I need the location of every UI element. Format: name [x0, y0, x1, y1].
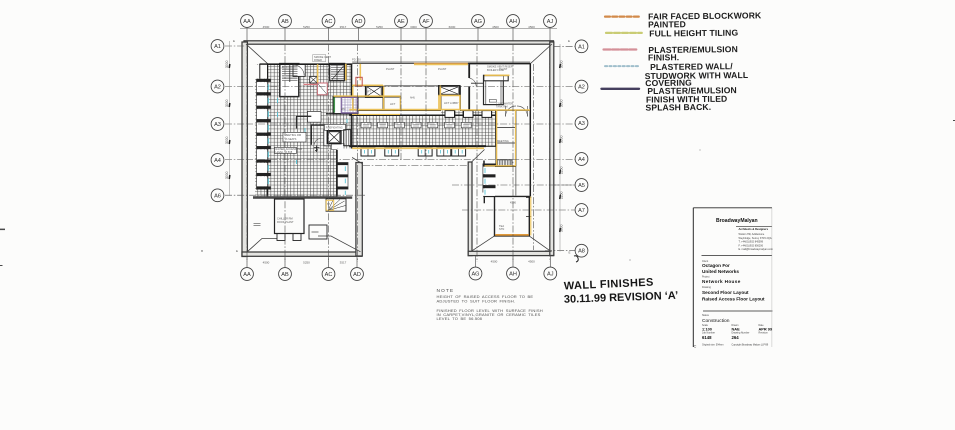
svg-text:WC: WC: [341, 107, 345, 111]
svg-text:A3: A3: [578, 121, 585, 127]
svg-text:LIFT: LIFT: [366, 91, 371, 94]
svg-text:A2: A2: [214, 85, 221, 91]
svg-text:3517: 3517: [340, 261, 347, 265]
svg-text:AA: AA: [243, 272, 251, 278]
svg-text:Status: Status: [702, 314, 710, 317]
svg-text:MEETING: MEETING: [497, 139, 509, 143]
svg-text:6148: 6148: [702, 335, 712, 340]
svg-text:E: E: [568, 251, 570, 255]
svg-text:CHILLER RM: CHILLER RM: [277, 217, 293, 221]
svg-text:5250: 5250: [303, 261, 310, 265]
svg-text:4500: 4500: [492, 25, 499, 29]
svg-text:A3: A3: [214, 122, 221, 128]
svg-text:A4: A4: [578, 157, 585, 163]
svg-text:3000: 3000: [225, 99, 229, 107]
svg-text:PD 150: PD 150: [352, 58, 361, 62]
svg-text:LEVEL TO BE 56.508: LEVEL TO BE 56.508: [437, 316, 483, 321]
svg-text:PLANT: PLANT: [386, 67, 395, 71]
svg-text:AG: AG: [474, 19, 482, 25]
svg-text:LIFT LOBBY: LIFT LOBBY: [444, 101, 459, 105]
svg-text:BOILER FLUE: BOILER FLUE: [487, 68, 504, 72]
svg-text:A4: A4: [214, 158, 221, 164]
svg-text:AF: AF: [422, 19, 430, 25]
svg-text:TANK RM: TANK RM: [496, 104, 507, 108]
svg-text:MEETING RM: MEETING RM: [285, 133, 302, 137]
svg-text:E. mail@broadwaymalyan.com: E. mail@broadwaymalyan.com: [739, 248, 774, 251]
svg-text:16 SEATS: 16 SEATS: [285, 137, 297, 141]
svg-text:A8: A8: [578, 249, 585, 255]
svg-text:T. +44(0)1932 845599: T. +44(0)1932 845599: [739, 241, 764, 244]
svg-text:NAE: NAE: [732, 326, 741, 331]
svg-text:ADJUSTED TO SUIT FLOOR FINISH.: ADJUSTED TO SUIT FLOOR FINISH.: [437, 298, 516, 303]
svg-text:FULL HEIGHT TILING: FULL HEIGHT TILING: [649, 28, 738, 39]
svg-text:Original size: 594mm: Original size: 594mm: [702, 343, 724, 346]
svg-text:3000: 3000: [560, 99, 564, 107]
svg-text:3000: 3000: [225, 171, 229, 179]
svg-text:F. +44(0)1932 856206: F. +44(0)1932 856206: [739, 244, 764, 247]
svg-text:A5: A5: [578, 183, 585, 189]
svg-text:AB: AB: [281, 19, 289, 25]
svg-text:4500: 4500: [528, 260, 535, 264]
svg-text:RISER: RISER: [314, 58, 322, 62]
svg-text:LIFT: LIFT: [390, 102, 396, 106]
svg-text:United Networks: United Networks: [702, 269, 739, 274]
svg-text:3517: 3517: [340, 25, 347, 29]
svg-text:Wotton Hill, Addlestone: Wotton Hill, Addlestone: [739, 233, 765, 236]
svg-text:C: C: [694, 344, 697, 349]
svg-text:Octagon For: Octagon For: [702, 263, 730, 268]
svg-text:AC: AC: [325, 19, 333, 25]
svg-text:2250: 2250: [560, 166, 564, 174]
svg-text:AJ: AJ: [547, 19, 554, 25]
svg-text:A6: A6: [214, 193, 221, 199]
svg-text:5250: 5250: [376, 25, 383, 29]
svg-text:4500: 4500: [263, 25, 270, 29]
svg-text:5250: 5250: [303, 25, 310, 29]
svg-text:3000: 3000: [560, 135, 564, 143]
svg-text:PLANT: PLANT: [438, 67, 447, 71]
svg-text:AC: AC: [325, 272, 333, 278]
svg-text:NOTE: NOTE: [437, 288, 455, 294]
svg-text:A2: A2: [578, 85, 585, 91]
svg-text:AA: AA: [243, 19, 251, 25]
svg-text:Second Floor Layout: Second Floor Layout: [702, 290, 749, 295]
svg-text:Construction: Construction: [702, 318, 730, 324]
svg-text:STN: STN: [499, 227, 504, 231]
svg-text:E: E: [568, 39, 570, 43]
svg-text:SPLASH BACK.: SPLASH BACK.: [645, 102, 711, 113]
svg-text:Raised Access Floor Layout: Raised Access Floor Layout: [702, 297, 765, 302]
svg-text:264: 264: [732, 335, 740, 340]
svg-text:1:100: 1:100: [702, 326, 712, 331]
svg-text:LEVEL 56.508: LEVEL 56.508: [276, 150, 293, 154]
svg-text:Revision: Revision: [759, 332, 769, 335]
svg-text:AD: AD: [353, 272, 361, 278]
svg-text:6000: 6000: [449, 25, 456, 29]
svg-text:E: E: [233, 39, 235, 43]
svg-text:3000: 3000: [410, 25, 417, 29]
svg-text:AH: AH: [509, 272, 517, 278]
svg-text:Copyright Broadway Malyan LLP: Copyright Broadway Malyan LLP/99: [732, 343, 769, 346]
svg-text:AG: AG: [471, 272, 479, 278]
svg-text:Network House: Network House: [702, 279, 741, 284]
svg-text:3000: 3000: [225, 136, 229, 144]
svg-text:A1: A1: [214, 44, 221, 50]
svg-text:AH: AH: [509, 19, 517, 25]
svg-text:Drawing: Drawing: [702, 286, 711, 289]
svg-text:4500: 4500: [263, 261, 270, 265]
svg-text:ROOF PLANT: ROOF PLANT: [277, 220, 294, 224]
svg-text:3000: 3000: [560, 60, 564, 68]
svg-text:Weybridge, Surrey KT15 2QA: Weybridge, Surrey KT15 2QA: [739, 237, 772, 240]
svg-text:APR 99: APR 99: [759, 326, 773, 331]
svg-text:A7: A7: [578, 208, 585, 214]
svg-text:FIREFIGHTING: FIREFIGHTING: [326, 127, 343, 130]
svg-text:3000: 3000: [225, 60, 229, 68]
svg-text:3600: 3600: [560, 224, 564, 232]
svg-text:BroadwayMalyan: BroadwayMalyan: [716, 218, 758, 224]
svg-text:4500: 4500: [528, 25, 535, 29]
svg-text:AE: AE: [397, 19, 405, 25]
svg-text:SMOKE VENT RISER: SMOKE VENT RISER: [487, 65, 513, 69]
svg-text:AJ: AJ: [547, 272, 554, 278]
svg-text:E: E: [236, 249, 238, 253]
svg-text:2250: 2250: [560, 191, 564, 199]
svg-text:45.86: 45.86: [510, 202, 517, 205]
svg-text:AD: AD: [355, 19, 363, 25]
svg-text:A1: A1: [578, 44, 585, 50]
svg-text:AB: AB: [281, 272, 289, 278]
svg-text:4500: 4500: [491, 260, 498, 264]
svg-text:AHU: AHU: [410, 97, 415, 100]
svg-text:Architects & Designers: Architects & Designers: [739, 227, 769, 231]
svg-text:AHU: AHU: [282, 66, 288, 70]
